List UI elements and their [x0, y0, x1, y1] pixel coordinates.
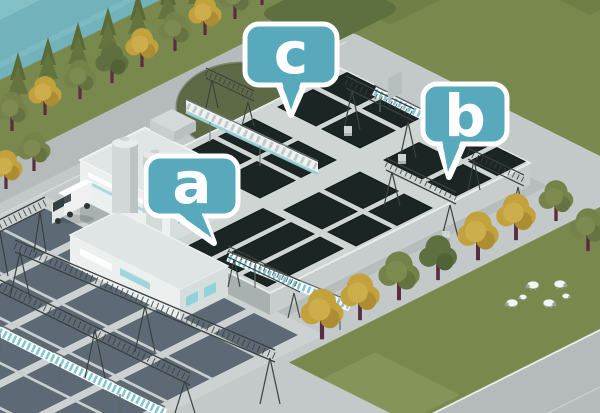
treatment-plant-illustration: c a b	[0, 0, 600, 413]
sheep-flock	[505, 281, 571, 309]
illustration-stage: c a b	[0, 0, 600, 413]
silo	[112, 137, 138, 213]
callout-c-label: c	[274, 19, 308, 87]
callout-a-label: a	[172, 149, 211, 217]
callout-b-label: b	[444, 82, 486, 150]
